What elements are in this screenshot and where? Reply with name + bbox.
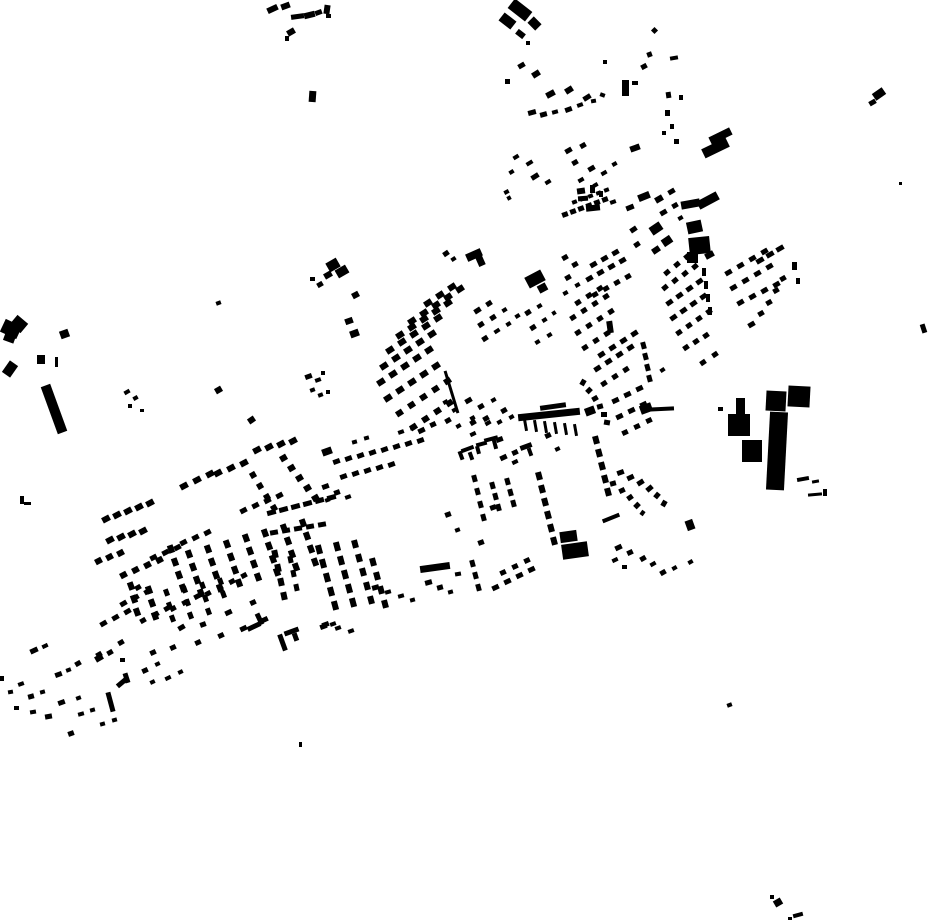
building-footprint xyxy=(659,569,667,576)
building-footprint xyxy=(120,658,125,662)
building-footprint xyxy=(601,196,608,203)
building-footprint xyxy=(333,541,341,551)
building-footprint xyxy=(495,503,502,511)
building-footprint xyxy=(444,417,452,424)
building-footprint xyxy=(630,329,639,337)
building-footprint xyxy=(649,561,656,567)
building-footprint xyxy=(469,419,477,426)
building-footprint xyxy=(78,711,85,716)
building-footprint xyxy=(613,279,621,286)
building-footprint xyxy=(753,270,762,278)
building-footprint xyxy=(266,4,279,14)
building-footprint xyxy=(642,352,649,360)
building-footprint xyxy=(699,359,707,367)
building-footprint xyxy=(544,510,552,519)
building-footprint xyxy=(67,730,74,737)
building-footprint xyxy=(309,91,317,102)
building-footprint xyxy=(314,377,321,383)
building-footprint xyxy=(381,599,389,608)
building-footprint xyxy=(659,367,665,373)
building-footprint xyxy=(514,313,520,319)
building-footprint xyxy=(569,208,576,215)
building-footprint xyxy=(100,721,106,726)
building-footprint xyxy=(256,482,264,490)
building-footprint xyxy=(629,143,640,152)
building-footprint xyxy=(627,407,635,414)
building-footprint xyxy=(409,423,418,432)
building-footprint xyxy=(508,169,514,175)
building-footprint xyxy=(347,628,354,634)
building-footprint xyxy=(596,315,604,322)
building-footprint xyxy=(689,299,698,307)
building-footprint xyxy=(561,254,569,261)
building-footprint xyxy=(808,492,822,496)
building-footprint xyxy=(616,469,624,476)
building-footprint xyxy=(65,667,71,672)
building-footprint xyxy=(611,557,618,563)
building-footprint xyxy=(469,559,476,567)
building-footprint xyxy=(351,470,359,477)
building-footprint xyxy=(37,355,45,364)
building-footprint xyxy=(779,275,787,282)
building-footprint xyxy=(344,455,352,462)
building-footprint xyxy=(671,277,679,285)
building-footprint xyxy=(310,277,315,281)
building-footprint xyxy=(623,391,631,398)
building-footprint xyxy=(685,519,696,531)
building-footprint xyxy=(666,92,672,99)
building-footprint xyxy=(228,578,236,585)
building-footprint xyxy=(40,689,46,694)
building-footprint xyxy=(217,632,225,639)
building-footprint xyxy=(327,494,337,501)
building-footprint xyxy=(695,277,704,285)
building-footprint xyxy=(602,293,610,300)
building-footprint xyxy=(563,423,568,435)
building-footprint xyxy=(491,584,499,591)
building-footprint xyxy=(661,235,674,247)
building-footprint xyxy=(529,324,537,331)
building-footprint xyxy=(55,357,58,367)
building-footprint xyxy=(510,499,517,507)
building-footprint xyxy=(179,481,189,490)
building-footprint xyxy=(609,199,616,205)
building-footprint xyxy=(286,27,296,36)
building-footprint xyxy=(492,492,499,500)
building-footprint xyxy=(692,338,700,346)
building-footprint xyxy=(920,323,928,333)
building-footprint xyxy=(376,377,386,386)
building-footprint xyxy=(591,395,599,402)
building-footprint xyxy=(141,667,149,674)
building-footprint xyxy=(533,420,538,432)
building-footprint xyxy=(205,469,215,478)
building-footprint xyxy=(351,539,359,548)
building-footprint xyxy=(654,194,664,203)
building-footprint xyxy=(189,562,197,572)
building-footprint xyxy=(20,496,24,504)
building-footprint xyxy=(303,531,311,541)
building-footprint xyxy=(625,204,634,212)
building-footprint xyxy=(404,440,412,447)
building-footprint xyxy=(472,571,479,579)
building-footprint xyxy=(680,198,700,209)
building-footprint xyxy=(395,385,405,394)
building-footprint xyxy=(421,415,430,424)
building-footprint xyxy=(611,397,619,404)
building-footprint xyxy=(247,416,256,425)
building-footprint xyxy=(603,187,609,192)
building-footprint xyxy=(204,544,212,554)
building-footprint xyxy=(226,463,236,472)
building-footprint xyxy=(309,387,315,392)
building-footprint xyxy=(455,284,465,293)
building-footprint xyxy=(387,461,395,468)
building-footprint xyxy=(636,479,645,487)
building-footprint xyxy=(518,408,580,421)
building-footprint xyxy=(461,445,475,453)
building-footprint xyxy=(369,557,377,566)
building-footprint xyxy=(319,558,327,568)
building-footprint xyxy=(454,527,460,532)
building-footprint xyxy=(797,476,810,482)
building-footprint xyxy=(412,353,422,362)
building-footprint xyxy=(299,742,302,747)
building-footprint xyxy=(644,363,651,371)
building-footprint xyxy=(671,565,677,571)
building-footprint xyxy=(512,154,519,161)
building-footprint xyxy=(490,397,496,403)
building-footprint xyxy=(539,111,547,118)
building-footprint xyxy=(388,369,398,378)
building-footprint xyxy=(534,339,540,345)
building-footprint xyxy=(280,591,288,600)
figure-ground-map xyxy=(0,0,930,924)
building-footprint xyxy=(14,706,19,710)
building-footprint xyxy=(464,397,473,405)
building-footprint xyxy=(547,523,555,532)
building-footprint xyxy=(419,393,428,402)
building-footprint xyxy=(581,344,589,351)
building-footprint xyxy=(618,257,627,265)
building-footprint xyxy=(41,384,67,434)
building-footprint xyxy=(231,565,239,575)
building-footprint xyxy=(427,329,437,338)
building-footprints-layer xyxy=(0,0,930,924)
building-footprint xyxy=(708,307,712,315)
building-footprint xyxy=(506,195,511,200)
building-footprint xyxy=(99,620,108,628)
building-footprint xyxy=(538,484,546,493)
building-footprint xyxy=(773,897,783,907)
building-footprint xyxy=(323,270,333,279)
building-footprint xyxy=(295,474,304,483)
building-footprint xyxy=(444,371,460,414)
building-footprint xyxy=(536,303,542,309)
building-footprint xyxy=(589,261,598,269)
building-footprint xyxy=(356,452,364,459)
building-footprint xyxy=(119,571,128,580)
building-footprint xyxy=(573,424,578,436)
building-footprint xyxy=(633,502,641,510)
building-footprint xyxy=(515,29,526,39)
building-footprint xyxy=(279,506,289,513)
building-footprint xyxy=(505,321,511,327)
building-footprint xyxy=(277,577,285,586)
building-footprint xyxy=(667,188,676,196)
building-footprint xyxy=(527,448,533,457)
building-footprint xyxy=(527,16,541,30)
building-footprint xyxy=(149,679,155,685)
building-footprint xyxy=(645,484,654,492)
building-footprint xyxy=(527,109,536,116)
building-footprint xyxy=(455,423,461,429)
building-footprint xyxy=(615,413,623,420)
building-footprint xyxy=(662,131,666,135)
building-footprint xyxy=(199,621,206,628)
building-footprint xyxy=(215,300,221,305)
building-footprint xyxy=(254,572,262,582)
building-footprint xyxy=(185,549,193,559)
building-footprint xyxy=(175,570,183,580)
building-footprint xyxy=(326,14,331,18)
building-footprint xyxy=(128,404,132,408)
building-footprint xyxy=(748,293,757,301)
building-footprint xyxy=(293,584,299,592)
building-footprint xyxy=(279,454,288,463)
building-footprint xyxy=(54,671,62,678)
building-footprint xyxy=(564,106,572,113)
building-footprint xyxy=(364,435,370,440)
building-footprint xyxy=(561,541,589,559)
building-footprint xyxy=(661,284,669,292)
building-footprint xyxy=(571,159,579,166)
building-footprint xyxy=(169,614,176,622)
building-footprint xyxy=(249,599,257,606)
building-footprint xyxy=(385,589,392,594)
building-footprint xyxy=(315,544,323,554)
building-footprint xyxy=(574,299,582,306)
building-footprint xyxy=(545,89,556,99)
building-footprint xyxy=(531,69,541,78)
building-footprint xyxy=(585,275,594,283)
building-footprint xyxy=(508,414,514,420)
building-footprint xyxy=(134,502,144,511)
building-footprint xyxy=(242,533,250,543)
building-footprint xyxy=(474,487,481,495)
building-footprint xyxy=(600,170,607,176)
building-footprint xyxy=(649,221,664,235)
building-footprint xyxy=(105,692,115,713)
building-footprint xyxy=(564,274,572,281)
building-footprint xyxy=(587,193,593,198)
building-footprint xyxy=(251,502,260,510)
building-footprint xyxy=(208,557,216,567)
building-footprint xyxy=(407,377,417,386)
building-footprint xyxy=(685,284,694,292)
building-footprint xyxy=(577,205,584,212)
building-footprint xyxy=(380,446,388,453)
building-footprint xyxy=(639,555,647,562)
building-footprint xyxy=(651,27,658,34)
building-footprint xyxy=(544,179,551,186)
building-footprint xyxy=(291,503,301,510)
building-footprint xyxy=(670,124,674,129)
building-footprint xyxy=(292,632,299,641)
building-footprint xyxy=(792,262,797,270)
building-footprint xyxy=(899,182,902,185)
building-footprint xyxy=(564,85,574,94)
building-footprint xyxy=(596,269,605,277)
building-footprint xyxy=(442,250,450,258)
building-footprint xyxy=(318,521,327,527)
building-footprint xyxy=(416,437,424,444)
building-footprint xyxy=(429,421,437,428)
building-footprint xyxy=(772,287,780,294)
building-footprint xyxy=(772,281,781,289)
building-footprint xyxy=(447,282,457,291)
building-footprint xyxy=(551,310,557,316)
building-footprint xyxy=(246,546,254,556)
building-footprint xyxy=(477,500,484,508)
building-footprint xyxy=(675,329,683,337)
building-footprint xyxy=(499,454,507,461)
building-footprint xyxy=(525,159,533,166)
building-footprint xyxy=(702,332,710,340)
building-footprint xyxy=(626,494,634,502)
building-footprint xyxy=(622,565,627,569)
building-footprint xyxy=(123,389,130,395)
building-footprint xyxy=(397,429,404,435)
building-footprint xyxy=(615,350,624,358)
building-footprint xyxy=(285,36,289,41)
building-footprint xyxy=(240,572,248,579)
building-footprint xyxy=(651,245,661,254)
building-footprint xyxy=(116,532,126,541)
building-footprint xyxy=(553,422,558,434)
building-footprint xyxy=(250,559,258,569)
building-footprint xyxy=(435,290,445,299)
building-footprint xyxy=(599,92,605,97)
building-footprint xyxy=(468,452,474,461)
building-footprint xyxy=(284,536,292,546)
building-footprint xyxy=(596,403,603,409)
building-footprint xyxy=(379,361,389,370)
building-footprint xyxy=(564,147,573,155)
building-footprint xyxy=(227,552,235,562)
building-footprint xyxy=(576,102,583,108)
building-footprint xyxy=(187,611,194,619)
building-footprint xyxy=(192,475,202,484)
building-footprint xyxy=(736,262,745,270)
building-footprint xyxy=(591,99,597,104)
building-footprint xyxy=(367,595,375,604)
building-footprint xyxy=(640,63,648,70)
building-footprint xyxy=(344,494,351,500)
building-footprint xyxy=(395,409,404,418)
building-footprint xyxy=(131,566,140,575)
building-footprint xyxy=(639,510,645,516)
building-footprint xyxy=(101,514,111,523)
building-footprint xyxy=(614,544,622,551)
building-footprint xyxy=(530,172,539,180)
building-footprint xyxy=(592,337,600,344)
building-footprint xyxy=(601,474,609,483)
building-footprint xyxy=(728,414,750,436)
building-footprint xyxy=(501,307,507,313)
building-footprint xyxy=(420,562,451,573)
building-footprint xyxy=(675,291,684,299)
building-footprint xyxy=(30,710,37,715)
building-footprint xyxy=(41,643,48,649)
building-footprint xyxy=(665,298,674,306)
building-footprint xyxy=(766,412,788,491)
building-footprint xyxy=(584,406,596,417)
building-footprint xyxy=(455,572,462,577)
building-footprint xyxy=(235,578,243,588)
building-footprint xyxy=(133,607,141,617)
building-footprint xyxy=(383,393,393,402)
building-footprint xyxy=(596,285,604,292)
building-footprint xyxy=(303,500,313,507)
building-footprint xyxy=(595,448,603,457)
building-footprint xyxy=(503,189,509,195)
building-footprint xyxy=(400,361,410,370)
building-footprint xyxy=(436,584,443,590)
building-footprint xyxy=(663,269,671,277)
building-footprint xyxy=(603,60,607,64)
building-footprint xyxy=(670,55,679,60)
building-footprint xyxy=(265,541,273,551)
building-footprint xyxy=(419,369,429,378)
building-footprint xyxy=(321,371,325,375)
building-footprint xyxy=(132,395,138,401)
building-footprint xyxy=(682,344,690,352)
building-footprint xyxy=(671,202,679,209)
building-footprint xyxy=(321,483,329,490)
building-footprint xyxy=(138,526,148,535)
building-footprint xyxy=(252,445,262,454)
building-footprint xyxy=(632,81,638,85)
building-footprint xyxy=(74,660,82,667)
building-footprint xyxy=(646,374,653,382)
building-footprint xyxy=(423,298,433,307)
building-footprint xyxy=(317,392,323,397)
building-footprint xyxy=(741,277,750,285)
building-footprint xyxy=(554,446,560,452)
building-footprint xyxy=(611,249,620,257)
building-footprint xyxy=(524,309,532,316)
building-footprint xyxy=(94,557,103,566)
building-footprint xyxy=(571,199,577,204)
building-footprint xyxy=(677,215,683,221)
building-footprint xyxy=(685,322,693,330)
building-footprint xyxy=(695,315,703,323)
building-footprint xyxy=(134,584,142,591)
building-footprint xyxy=(679,306,688,314)
building-footprint xyxy=(765,299,773,306)
building-footprint xyxy=(726,702,732,707)
building-footprint xyxy=(585,292,593,299)
building-footprint xyxy=(345,583,353,593)
building-footprint xyxy=(239,507,248,515)
building-footprint xyxy=(635,385,643,392)
building-footprint xyxy=(511,563,519,570)
building-footprint xyxy=(261,528,269,538)
building-footprint xyxy=(480,513,487,521)
building-footprint xyxy=(673,261,681,269)
building-footprint xyxy=(546,332,552,338)
